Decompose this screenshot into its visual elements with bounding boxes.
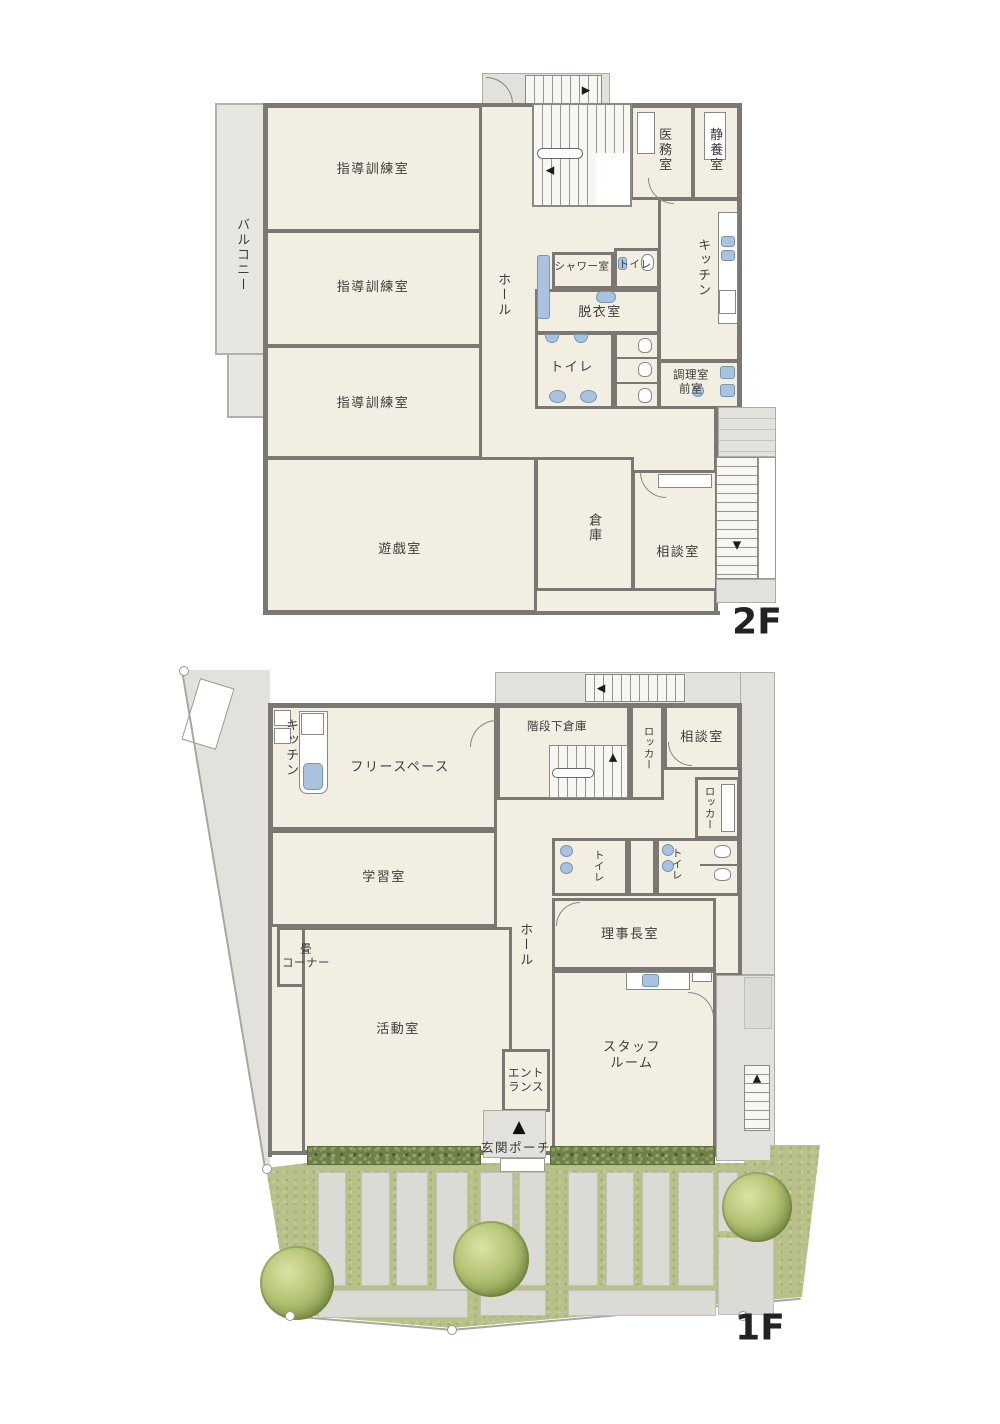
room-label: フリースペース [350, 760, 449, 776]
room-label: 脱衣室 [578, 305, 622, 321]
room-label: 階段下倉庫 [527, 719, 587, 733]
stall-divider [614, 382, 660, 384]
room-label: 相談室 [656, 545, 700, 561]
room-label: キッチン [694, 238, 710, 298]
room-label: 遊戯室 [378, 542, 422, 558]
toilet-bowl [638, 362, 652, 377]
room-label-hall-1f: ホール [516, 923, 532, 968]
hedge-right [550, 1146, 715, 1165]
stair-direction-down-icon: ▼ [733, 539, 741, 552]
stair-base [716, 579, 776, 603]
room-activity [302, 927, 512, 1153]
toilet-bowl [638, 338, 652, 353]
toilet-bowl [549, 390, 566, 403]
tree [453, 1221, 529, 1297]
room-label: 活動室 [376, 1022, 420, 1038]
driveway-left [183, 670, 270, 1170]
path-strip [396, 1172, 428, 1286]
porch-step [500, 1158, 545, 1172]
exterior-stair-right-2f [716, 457, 758, 579]
room-label: 畳 コーナー [282, 942, 330, 971]
stove [301, 713, 324, 735]
sink [720, 366, 735, 379]
room-label-porch: 玄関ポーチ [481, 1140, 551, 1156]
room-label: 倉庫 [585, 513, 601, 543]
path-band [568, 1290, 716, 1316]
shelf [692, 972, 712, 982]
sink [721, 250, 735, 261]
closet-between-toilets [628, 838, 656, 896]
landing-2f [718, 407, 776, 457]
sink [721, 236, 735, 247]
path-strip [568, 1172, 598, 1286]
path-strip [678, 1172, 714, 1286]
toilet-bowl [638, 388, 652, 403]
room-label-balcony: バルコニー [233, 218, 249, 293]
room-label: 調理室 前室 [673, 368, 709, 397]
floor-plan-canvas: ▶ バルコニー 指導訓練室 指導訓練室 指導訓練室 ホール 遊戯室 倉庫 相談室 [0, 0, 1000, 1424]
stall-divider [614, 357, 660, 359]
room-label: 静養室 [706, 128, 722, 173]
path-strip [606, 1172, 634, 1286]
tree [260, 1246, 334, 1320]
stair-side [758, 457, 776, 579]
survey-point [447, 1325, 457, 1335]
room-label: スタッフ ルーム [603, 1040, 661, 1073]
floor-tag-2f: 2F [732, 602, 782, 643]
stair-direction-up-icon: ▲ [753, 1072, 761, 1085]
toilet-bowl [714, 845, 731, 858]
toilet-bowl [580, 390, 597, 403]
closet [658, 474, 712, 488]
bench [537, 255, 550, 319]
stair-direction-up-icon: ▲ [609, 751, 617, 764]
toilet-stalls [614, 332, 660, 409]
sink [560, 845, 573, 857]
stair-direction-left-icon: ◀ [597, 682, 605, 695]
room-label: 理事長室 [601, 927, 659, 943]
stove [719, 290, 736, 314]
stair-direction-right-icon: ▶ [582, 84, 590, 97]
room-label: 指導訓練室 [337, 280, 410, 296]
locker-shelf [721, 784, 735, 832]
stair-treads [534, 105, 630, 153]
tree [722, 1172, 792, 1242]
path-block [718, 1237, 774, 1315]
room-label: ロッカー [641, 726, 654, 770]
washer [596, 291, 616, 303]
stair-direction-left-icon: ◀ [546, 164, 554, 177]
room-label: トイレ [619, 258, 652, 271]
room-label: ロッカー [702, 786, 715, 830]
entrance-marker-icon: ▲ [512, 1117, 525, 1137]
stall-divider [700, 864, 740, 866]
walkway-panel [744, 977, 772, 1029]
balcony-2f-lower [227, 353, 267, 418]
stair-rail [552, 768, 594, 778]
survey-point [262, 1164, 272, 1174]
sink [560, 862, 573, 874]
hedge-left [307, 1146, 481, 1165]
survey-point [285, 1311, 295, 1321]
stair-rail [537, 148, 583, 159]
path-strip [361, 1172, 390, 1286]
room-label: 学習室 [362, 870, 406, 886]
room-label: シャワー室 [555, 260, 610, 273]
room-label-hall-2f: ホール [494, 273, 510, 318]
sink [642, 974, 659, 987]
room-label: トイレ [591, 850, 604, 883]
walkway-right-1f [740, 672, 775, 975]
survey-point [179, 666, 189, 676]
sink [720, 384, 735, 397]
room-label: 指導訓練室 [337, 396, 410, 412]
path-strip [642, 1172, 670, 1286]
room-label: 医務室 [655, 128, 671, 173]
room-label: トイレ [669, 848, 682, 881]
sink [303, 763, 323, 790]
room-label: 相談室 [680, 730, 724, 746]
room-label-kitchen-1f: キッチン [282, 718, 298, 778]
room-label: トイレ [550, 360, 594, 376]
bed [637, 112, 655, 154]
room-label: エント ランス [508, 1066, 544, 1095]
path-band [318, 1290, 468, 1318]
room-playroom [265, 457, 537, 613]
floor-tag-1f: 1F [735, 1308, 785, 1349]
toilet-bowl [714, 868, 731, 881]
stair-treads [525, 75, 602, 105]
room-label: 指導訓練室 [337, 162, 410, 178]
stair-treads [534, 153, 596, 205]
